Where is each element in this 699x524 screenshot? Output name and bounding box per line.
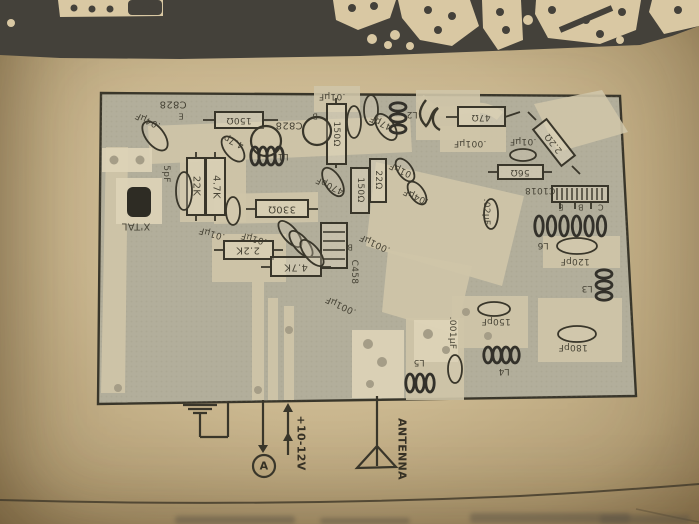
drill-hole [71,5,78,12]
resistor-body [351,168,369,213]
drill-hole [348,4,356,12]
solder-pad [616,36,624,44]
drill-hole [596,30,604,38]
drill-hole [448,12,456,20]
resistor-body [458,107,505,126]
external-schematic-symbols [0,396,699,524]
cropped-print-smudge [600,515,690,524]
component-hole [423,329,433,339]
ammeter-arrowhead [258,445,268,453]
coil-former-body [552,186,608,202]
copper-trace-photo-strip [0,0,699,59]
coil-former-body [321,223,347,268]
component-hole [377,357,387,367]
component-hole [136,156,145,165]
transistor-outline [303,117,331,145]
capacitor-outline [226,197,240,225]
solder-pad [390,30,400,40]
trace-patch [284,306,294,400]
drill-hole [424,6,432,14]
supply-arrowhead [283,403,293,412]
component-layout-board [98,86,636,404]
drill-hole [89,6,96,13]
drill-hole [502,26,510,34]
resistor-body [498,165,543,179]
drill-hole [107,6,114,13]
capacitor-outline [478,302,510,316]
trace-patch [252,282,264,400]
crystal-body [127,187,151,217]
component-hole [484,332,492,340]
component-hole [114,384,122,392]
cropped-print-smudge [320,518,410,524]
capacitor-outline [558,326,596,342]
solder-pad [523,15,533,25]
drill-hole [370,2,378,10]
component-hole [110,156,119,165]
ammeter-circle [253,455,275,477]
capacitor-outline [448,355,462,383]
drill-hole [434,26,442,34]
trace-patch [440,126,506,152]
resistor-body [224,241,273,259]
capacitor-outline [347,106,361,138]
component-hole [285,326,293,334]
resistor-body [206,158,225,215]
resistor-body [370,159,386,202]
antenna-symbol [357,396,396,468]
pcb-layout-diagram-art [0,0,699,524]
resistor-body [256,200,308,217]
capacitor-outline [176,172,192,210]
solder-pad [384,41,392,49]
drill-hole [618,8,626,16]
cropped-print-smudge [175,516,295,524]
resistor-body [215,112,263,128]
page-rule-line [0,484,699,503]
battery-ground-symbol [183,403,228,437]
solder-pad [406,42,414,50]
component-hole [254,386,262,394]
solder-pad [7,19,15,27]
drill-hole [143,6,150,13]
drill-hole [674,6,682,14]
capacitor-outline [557,238,597,254]
component-hole [363,339,373,349]
drill-hole [496,8,504,16]
trace-patch [268,298,278,400]
component-hole [462,308,470,316]
supply-arrowhead [283,432,293,441]
solder-pad [367,34,377,44]
capacitor-outline [484,199,498,229]
drill-hole [548,6,556,14]
magazine-photo-page: C828E.04μF150ΩC828B150Ω47pFL14.7p5pF22K4… [0,0,699,524]
component-hole [366,380,374,388]
capacitor-outline [510,149,536,161]
component-hole [442,346,450,354]
